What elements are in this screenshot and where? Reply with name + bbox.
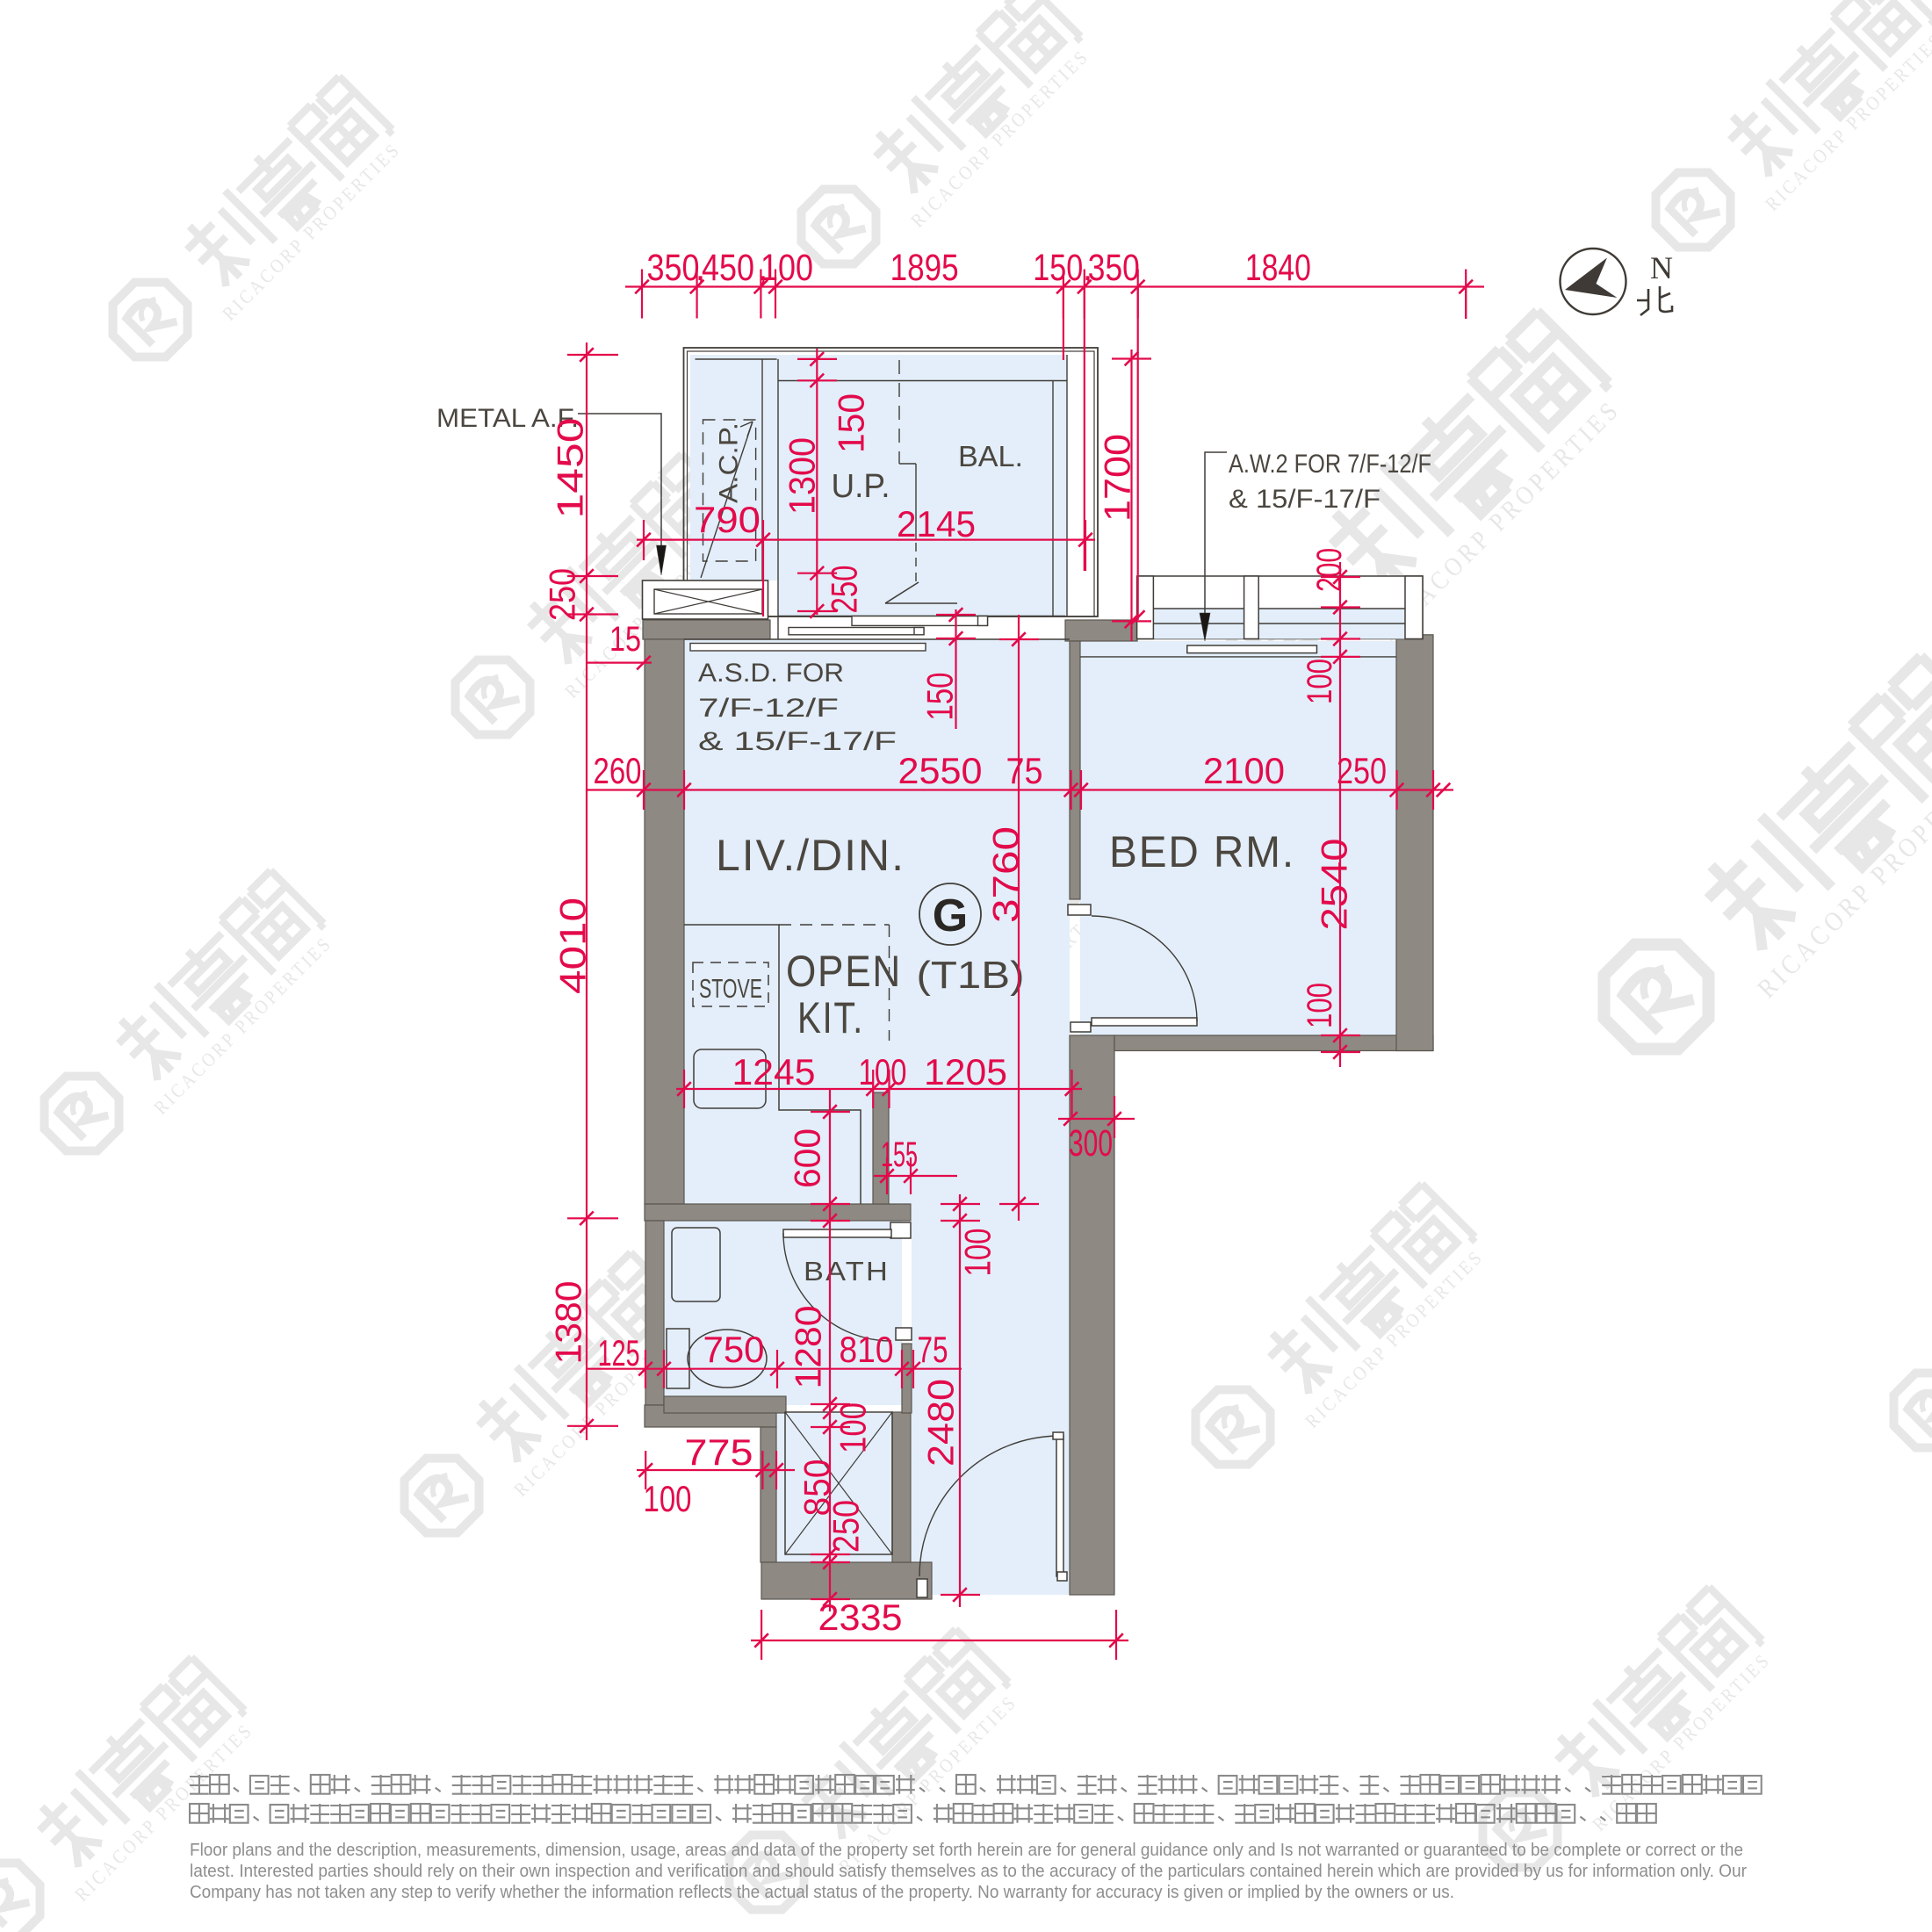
svg-text:Company has not taken any step: Company has not taken any step to verify…	[190, 1883, 1454, 1902]
svg-text:2540: 2540	[1314, 839, 1355, 931]
svg-text:350: 350	[1088, 247, 1140, 289]
svg-text:3760: 3760	[985, 826, 1027, 923]
svg-text:1205: 1205	[924, 1051, 1007, 1092]
svg-text:125: 125	[598, 1332, 640, 1373]
svg-text:100: 100	[761, 247, 813, 289]
svg-text:100: 100	[1301, 983, 1339, 1028]
svg-text:75: 75	[1006, 750, 1043, 791]
svg-text:75: 75	[918, 1329, 948, 1370]
svg-text:1300: 1300	[782, 437, 823, 515]
svg-text:100: 100	[1301, 659, 1339, 704]
svg-text:1700: 1700	[1097, 434, 1138, 522]
svg-text:1380: 1380	[548, 1281, 589, 1365]
svg-text:STOVE: STOVE	[699, 973, 762, 1004]
svg-text:latest. Interested parties sho: latest. Interested parties should rely o…	[190, 1862, 1747, 1881]
svg-text:N: N	[1650, 250, 1673, 285]
svg-text:,: ,	[1083, 247, 1093, 289]
svg-text:150: 150	[919, 673, 961, 721]
svg-text:KIT.: KIT.	[797, 993, 864, 1042]
svg-text:,: ,	[696, 247, 706, 289]
svg-text:810: 810	[840, 1329, 894, 1370]
svg-text:1895: 1895	[890, 247, 959, 289]
svg-text:& 15/F-17/F: & 15/F-17/F	[1229, 485, 1381, 514]
svg-text:2550: 2550	[898, 750, 983, 791]
svg-text:2480: 2480	[920, 1379, 962, 1467]
svg-text:100: 100	[644, 1478, 692, 1519]
svg-text:BED RM.: BED RM.	[1109, 827, 1295, 876]
svg-text:2335: 2335	[818, 1597, 903, 1638]
svg-text:BAL.: BAL.	[958, 440, 1023, 472]
svg-text:750: 750	[703, 1329, 765, 1370]
svg-text:BATH: BATH	[804, 1256, 890, 1287]
svg-text:100: 100	[859, 1051, 907, 1092]
svg-text:G: G	[933, 890, 968, 941]
svg-text:U.P.: U.P.	[832, 468, 890, 505]
svg-text:2145: 2145	[897, 503, 976, 544]
svg-text:A.C.P.: A.C.P.	[715, 422, 744, 503]
svg-text:Floor plans and the descriptio: Floor plans and the description, measure…	[190, 1841, 1743, 1860]
svg-text:250: 250	[824, 566, 865, 614]
svg-text:600: 600	[787, 1128, 828, 1188]
svg-text:350: 350	[647, 247, 700, 289]
svg-text:150: 150	[831, 393, 872, 453]
svg-text:& 15/F-17/F: & 15/F-17/F	[698, 727, 897, 756]
svg-text:155: 155	[881, 1135, 918, 1174]
svg-text:LIV./DIN.: LIV./DIN.	[716, 831, 905, 880]
svg-text:7/F-12/F: 7/F-12/F	[698, 694, 839, 723]
svg-text:775: 775	[685, 1431, 753, 1473]
svg-text:2100: 2100	[1203, 750, 1285, 791]
svg-text:1840: 1840	[1245, 247, 1311, 289]
svg-text:100: 100	[833, 1402, 874, 1453]
svg-text:200: 200	[1310, 548, 1349, 592]
svg-text:1450: 1450	[550, 418, 591, 519]
svg-text:250: 250	[1337, 750, 1387, 791]
svg-text:100: 100	[957, 1229, 998, 1277]
svg-text:,: ,	[758, 247, 768, 289]
svg-text:(T1B): (T1B)	[917, 954, 1025, 997]
svg-text:4010: 4010	[552, 898, 594, 994]
svg-text:250: 250	[825, 1500, 867, 1553]
svg-text:300: 300	[1069, 1122, 1113, 1164]
svg-text:A.S.D. FOR: A.S.D. FOR	[698, 659, 844, 688]
svg-text:A.W.2 FOR 7/F-12/F: A.W.2 FOR 7/F-12/F	[1229, 450, 1431, 479]
svg-text:1280: 1280	[788, 1306, 829, 1389]
svg-text:250: 250	[542, 568, 583, 621]
svg-text:15: 15	[609, 620, 641, 659]
svg-text:150: 150	[1033, 247, 1083, 289]
svg-text:790: 790	[694, 499, 761, 540]
svg-text:450: 450	[702, 247, 754, 289]
svg-text:OPEN: OPEN	[786, 947, 902, 996]
svg-text:1245: 1245	[732, 1051, 816, 1092]
svg-text:260: 260	[594, 750, 642, 791]
